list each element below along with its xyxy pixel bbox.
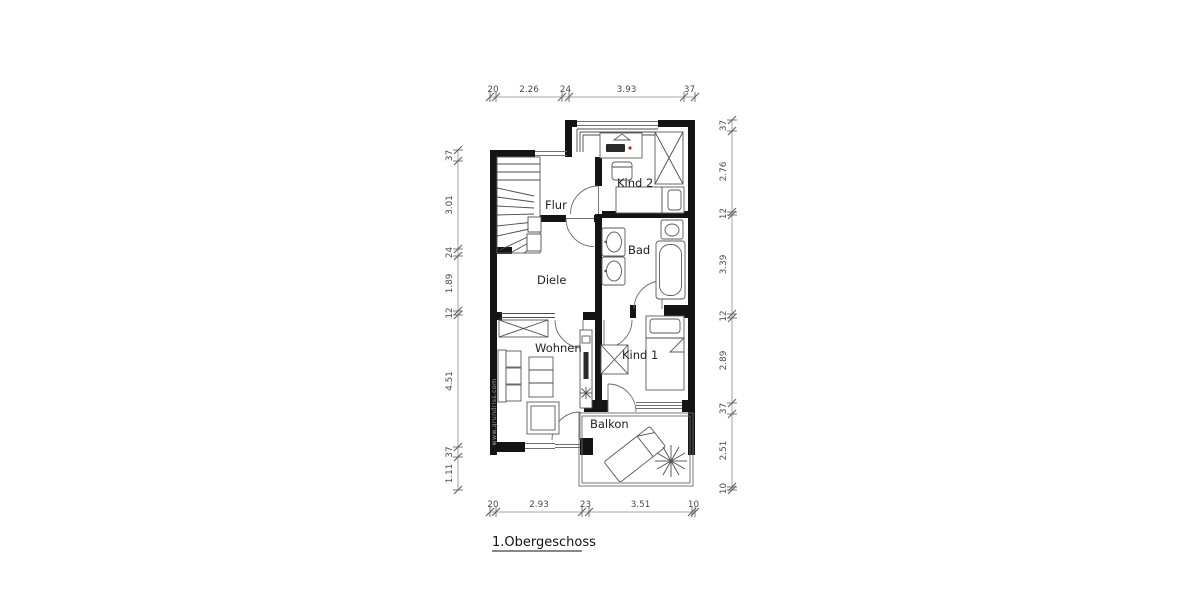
- dim-bottom-3: 3.51: [631, 500, 651, 510]
- sofa-icon: [498, 350, 521, 402]
- door-kind1-balkon: [608, 384, 636, 412]
- room-label-diele: Diele: [537, 273, 566, 287]
- dim-top-4: 37: [684, 85, 695, 95]
- side-table-icon: [527, 402, 559, 434]
- dim-bottom-2: 23: [580, 500, 591, 510]
- sink-icon: [602, 228, 625, 256]
- desk-icon: [600, 133, 642, 158]
- dim-left-7: 1.11: [445, 464, 455, 484]
- dim-top-2: 24: [560, 85, 572, 95]
- floorplan-page: Kind 2 Flur Bad Diele Wohnen Kind 1 Balk…: [0, 0, 1200, 600]
- dim-right-3: 3.39: [719, 255, 729, 275]
- room-label-kind2: Kind 2: [617, 176, 653, 190]
- dimension-chain-bottom: 20 2.93 23 3.51 10: [486, 500, 699, 517]
- dim-left-5: 4.51: [445, 371, 455, 391]
- dim-right-4: 12: [719, 310, 729, 321]
- dimension-chain-right: 37 2.76 12 3.39 12 2.89 37 2.51 10: [719, 116, 737, 494]
- dim-top-3: 3.93: [617, 85, 637, 95]
- coffee-table-icon: [529, 357, 553, 397]
- bad-fixtures: [602, 220, 685, 299]
- toilet-icon: [661, 220, 683, 239]
- kind2-furniture: [600, 132, 684, 213]
- door-flur-diele: [566, 219, 594, 247]
- dim-right-2: 12: [719, 208, 729, 219]
- dim-bottom-1: 2.93: [529, 500, 549, 510]
- floor-title-text: 1.Obergeschoss: [492, 535, 596, 550]
- dim-left-1: 3.01: [445, 195, 455, 215]
- window-wohnen-bottom: [525, 444, 580, 449]
- staircase-icon: [497, 157, 541, 253]
- room-label-bad: Bad: [628, 243, 650, 257]
- bathtub-icon: [656, 241, 685, 299]
- door-kind1: [604, 320, 632, 348]
- dim-right-5: 2.89: [719, 351, 729, 371]
- room-label-balkon: Balkon: [590, 417, 629, 431]
- room-label-kind1: Kind 1: [622, 348, 658, 362]
- room-label-wohnen: Wohnen: [535, 341, 582, 355]
- dim-left-6: 37: [445, 446, 455, 457]
- room-label-flur: Flur: [545, 198, 567, 212]
- floor-title: 1.Obergeschoss: [492, 535, 596, 551]
- lounger-icon: [604, 426, 666, 482]
- dim-bottom-0: 20: [487, 500, 499, 510]
- sink-icon: [602, 257, 625, 285]
- window-kind1-bottom: [636, 403, 682, 409]
- dim-bottom-4: 10: [688, 500, 700, 510]
- dim-right-7: 2.51: [719, 441, 729, 461]
- floorplan-drawing: Kind 2 Flur Bad Diele Wohnen Kind 1 Balk…: [0, 0, 1200, 600]
- door-kind2: [571, 186, 599, 214]
- wohnen-furniture: [498, 320, 592, 434]
- dim-left-0: 37: [445, 150, 455, 161]
- dim-right-8: 10: [719, 483, 729, 495]
- wardrobe-wohnen-icon: [499, 320, 548, 337]
- dim-top-0: 20: [487, 85, 499, 95]
- dimension-chain-top: 20 2.26 24 3.93 37: [486, 85, 699, 102]
- wardrobe-kind2-icon: [655, 132, 683, 184]
- partition-diele-wohnen: [500, 314, 555, 318]
- window-flur-top: [535, 152, 567, 156]
- dim-top-1: 2.26: [519, 85, 539, 95]
- watermark-text: www.grundriss.com: [491, 379, 498, 446]
- dim-left-4: 12: [445, 307, 455, 318]
- dimension-chain-left: 37 3.01 24 1.89 12 4.51 37 1.11: [445, 146, 463, 494]
- dim-right-0: 37: [719, 120, 729, 131]
- tv-board-icon: [580, 330, 592, 408]
- bed-kind2-icon: [616, 187, 684, 213]
- dim-right-6: 37: [719, 403, 729, 414]
- dim-left-2: 24: [445, 247, 455, 259]
- plant-small-icon: [580, 387, 592, 399]
- dim-right-1: 2.76: [719, 161, 729, 181]
- dim-left-3: 1.89: [445, 274, 455, 294]
